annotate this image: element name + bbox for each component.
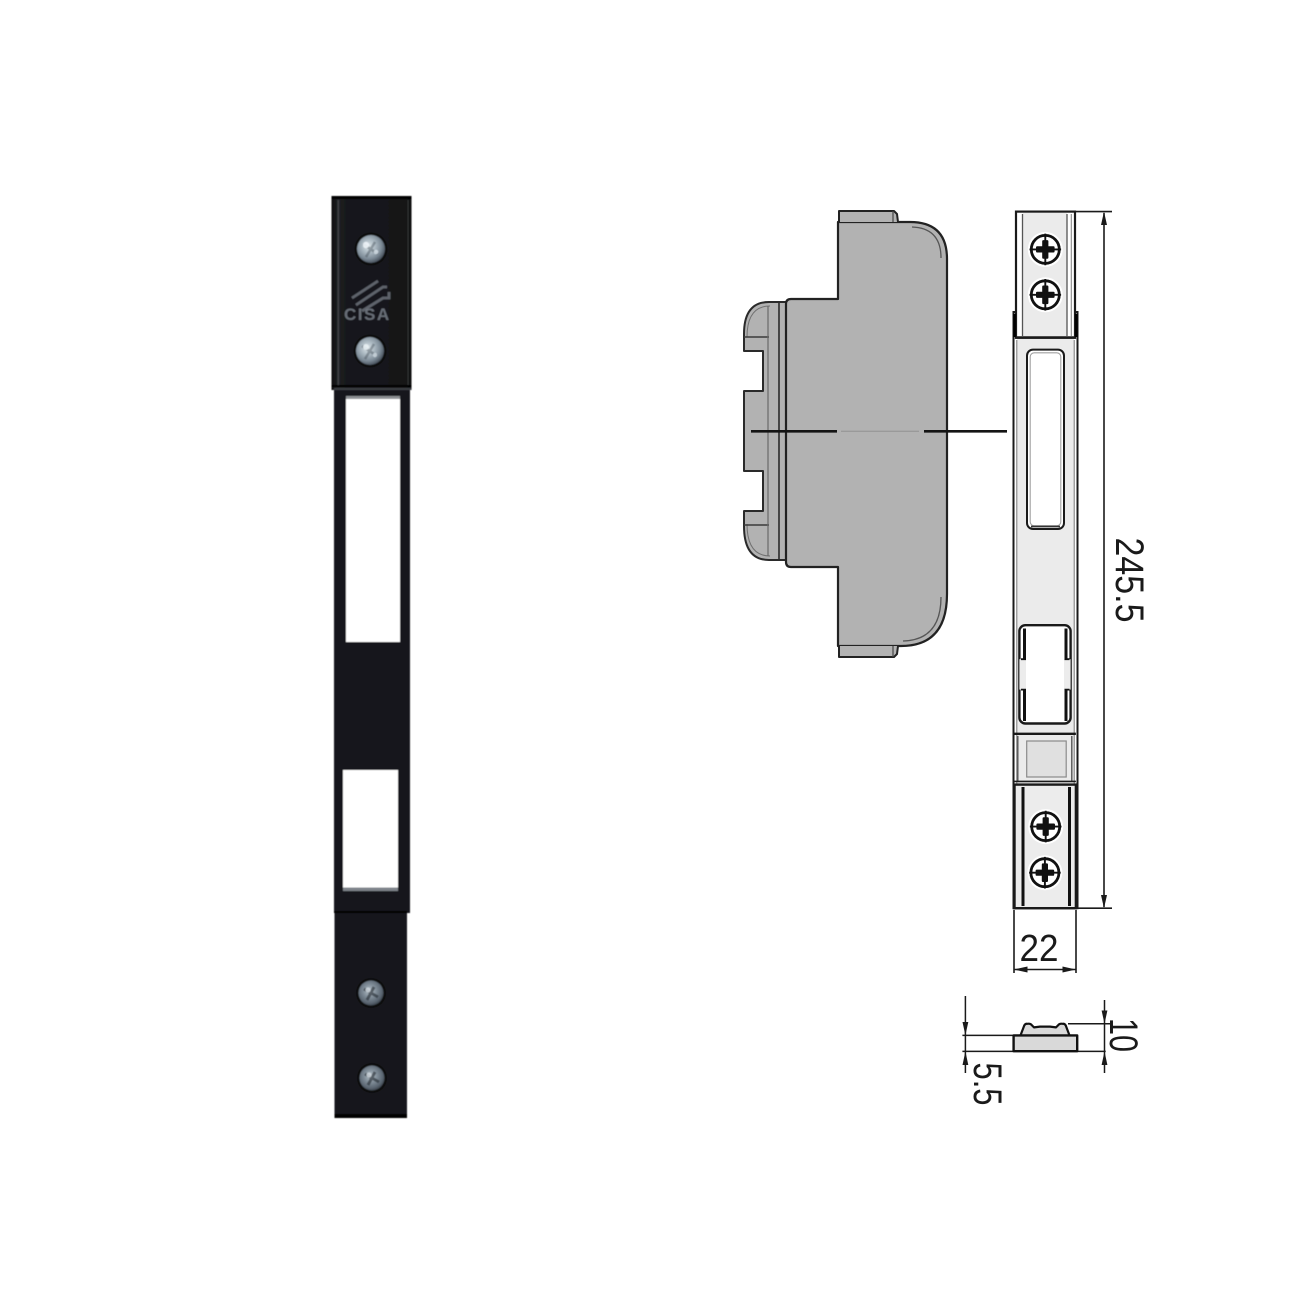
svg-text:5.5: 5.5: [965, 1063, 1009, 1106]
svg-text:245.5: 245.5: [1107, 538, 1151, 623]
svg-text:CISA: CISA: [344, 305, 391, 324]
svg-text:22: 22: [1020, 928, 1059, 970]
svg-text:10: 10: [1101, 1018, 1145, 1052]
